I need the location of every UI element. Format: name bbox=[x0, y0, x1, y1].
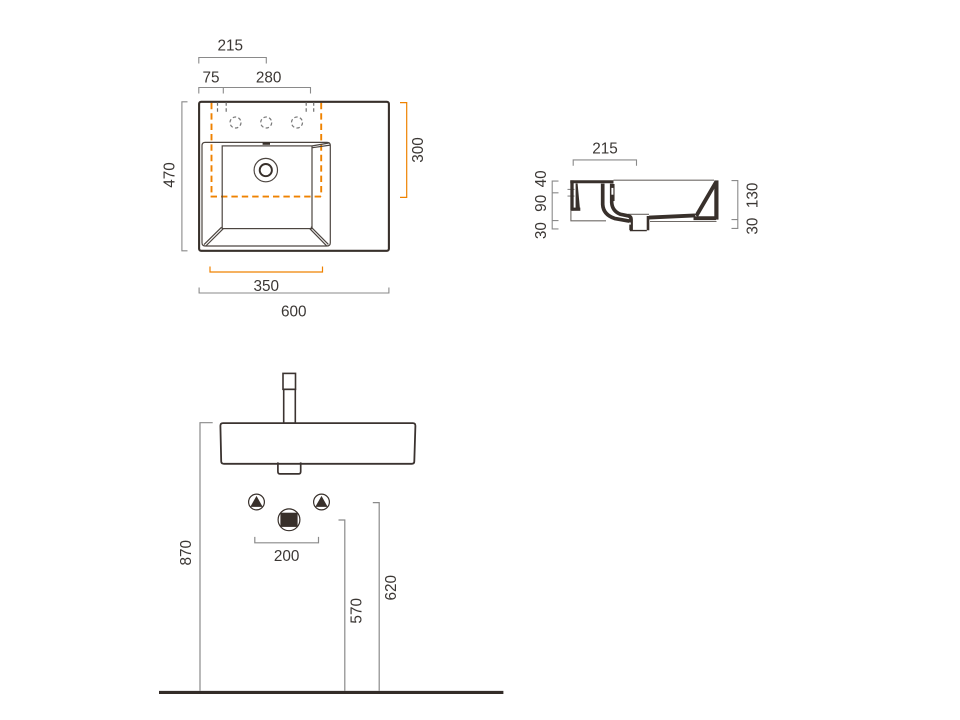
svg-text:350: 350 bbox=[254, 278, 280, 295]
svg-text:620: 620 bbox=[383, 575, 400, 601]
svg-text:870: 870 bbox=[178, 540, 195, 566]
svg-text:200: 200 bbox=[274, 548, 300, 565]
svg-text:600: 600 bbox=[281, 304, 307, 321]
svg-text:40: 40 bbox=[533, 170, 550, 187]
svg-text:470: 470 bbox=[162, 162, 179, 188]
svg-text:215: 215 bbox=[592, 140, 618, 157]
svg-text:300: 300 bbox=[410, 137, 427, 163]
svg-text:280: 280 bbox=[256, 70, 282, 87]
svg-text:215: 215 bbox=[218, 38, 244, 55]
svg-text:30: 30 bbox=[745, 218, 762, 235]
svg-text:75: 75 bbox=[202, 70, 219, 87]
svg-text:570: 570 bbox=[348, 598, 365, 624]
svg-text:130: 130 bbox=[745, 183, 762, 209]
svg-text:90: 90 bbox=[533, 195, 550, 212]
svg-text:30: 30 bbox=[533, 222, 550, 239]
